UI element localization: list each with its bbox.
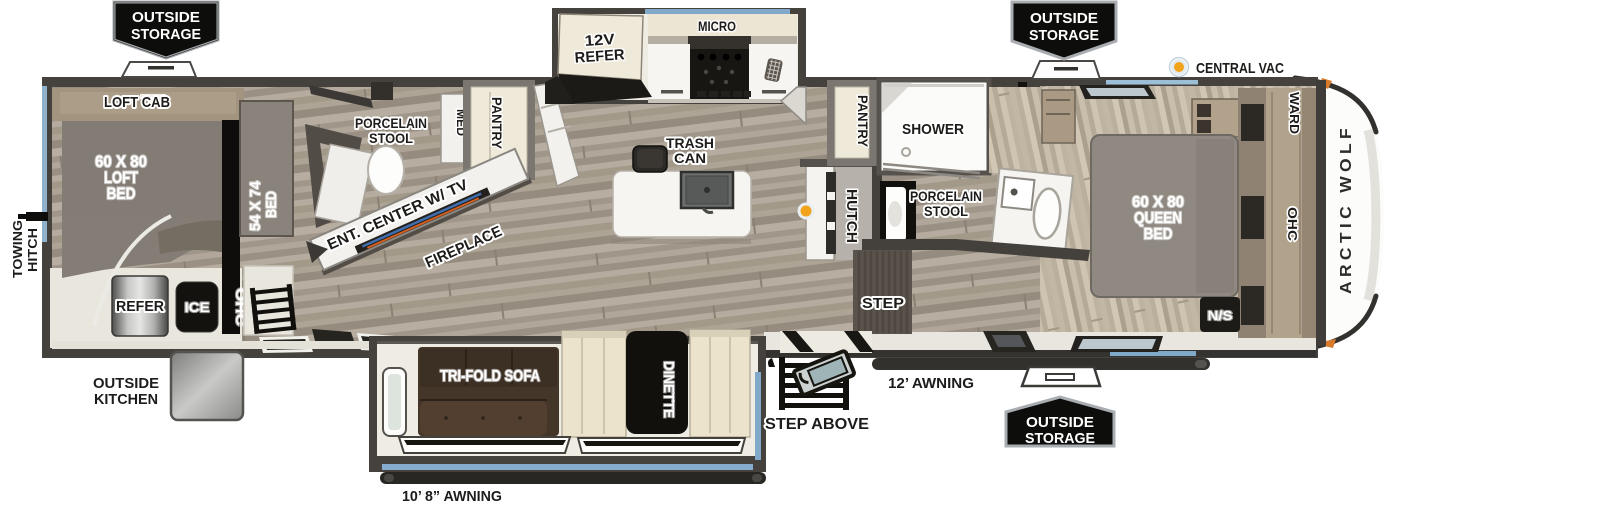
svg-text:OUTSIDE: OUTSIDE — [93, 375, 159, 392]
svg-text:STEP: STEP — [862, 295, 904, 312]
svg-text:STOOL: STOOL — [369, 130, 413, 146]
svg-text:60 X 80: 60 X 80 — [1132, 194, 1184, 211]
svg-text:OUTSIDE: OUTSIDE — [1026, 414, 1094, 431]
svg-text:REFER: REFER — [116, 298, 164, 315]
svg-text:STORAGE: STORAGE — [1029, 27, 1099, 44]
svg-text:OUTSIDE: OUTSIDE — [132, 9, 200, 26]
svg-text:OHC: OHC — [1285, 207, 1300, 242]
svg-text:MICRO: MICRO — [698, 18, 736, 34]
svg-text:STOOL: STOOL — [924, 203, 968, 219]
svg-text:LOFT CAB: LOFT CAB — [104, 94, 170, 111]
svg-text:12’ AWNING: 12’ AWNING — [888, 375, 974, 392]
svg-text:REFER: REFER — [574, 46, 625, 66]
svg-text:BED: BED — [107, 184, 136, 203]
svg-text:DINETTE: DINETTE — [660, 361, 677, 418]
svg-text:STORAGE: STORAGE — [1025, 430, 1095, 447]
svg-text:ICE: ICE — [185, 299, 210, 315]
svg-text:BED: BED — [263, 191, 280, 218]
svg-text:OUTSIDE: OUTSIDE — [1030, 10, 1098, 27]
svg-text:PANTRY: PANTRY — [855, 95, 871, 148]
svg-text:N/S: N/S — [1208, 308, 1233, 323]
svg-text:CAN: CAN — [674, 150, 706, 166]
svg-text:TRI-FOLD SOFA: TRI-FOLD SOFA — [440, 368, 540, 385]
svg-text:TRASH: TRASH — [666, 135, 714, 151]
svg-text:PORCELAIN: PORCELAIN — [910, 188, 982, 204]
svg-text:54 X 74: 54 X 74 — [247, 180, 264, 231]
svg-text:CENTRAL VAC: CENTRAL VAC — [1196, 60, 1284, 77]
svg-text:TOWING: TOWING — [10, 220, 25, 278]
svg-text:10’ 8” AWNING: 10’ 8” AWNING — [402, 488, 502, 505]
svg-text:ARCTIC WOLF: ARCTIC WOLF — [1338, 124, 1355, 294]
svg-text:KITCHEN: KITCHEN — [94, 391, 158, 408]
svg-text:HITCH: HITCH — [25, 228, 40, 272]
svg-text:STEP ABOVE: STEP ABOVE — [765, 416, 869, 433]
svg-text:PORCELAIN: PORCELAIN — [355, 115, 427, 131]
svg-text:QUEEN: QUEEN — [1134, 210, 1182, 227]
svg-text:PANTRY: PANTRY — [489, 97, 505, 150]
svg-text:SHOWER: SHOWER — [902, 121, 964, 138]
svg-text:STORAGE: STORAGE — [131, 26, 201, 43]
svg-text:HUTCH: HUTCH — [843, 189, 860, 243]
svg-text:WARD: WARD — [1287, 92, 1302, 134]
svg-text:BED: BED — [1144, 226, 1173, 243]
